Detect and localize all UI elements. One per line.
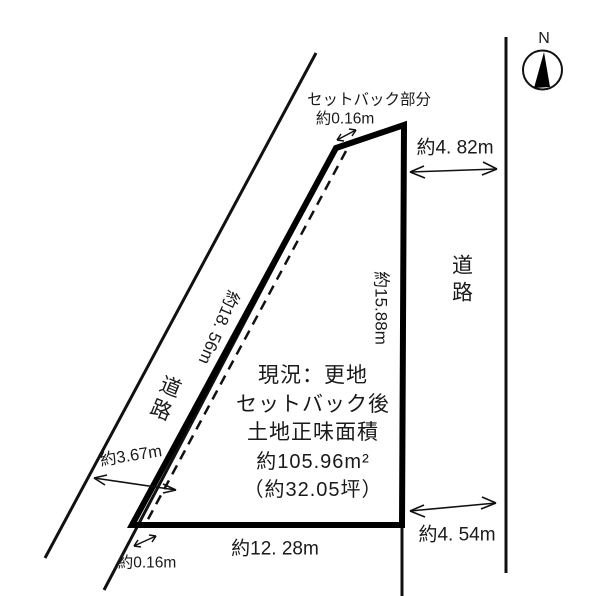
dimension-bottom-edge: 約12. 28m: [231, 540, 319, 561]
dimension-right-edge: 約15.88m: [371, 271, 390, 345]
setback-top-value: 約0.16m: [316, 110, 375, 127]
note-after-setback: セットバック後: [236, 391, 390, 420]
note-current-status: 現況：更地: [236, 362, 390, 391]
north-needle-icon: [534, 52, 550, 88]
setback-caption-label: セットバック部分: [307, 91, 431, 108]
dimension-arrow-top-right: [410, 162, 497, 178]
north-label: N: [538, 30, 550, 48]
dimension-arrow-bottom-right: [410, 497, 496, 517]
diagram-geometry: [0, 0, 600, 596]
dimension-top-right: 約4. 82m: [416, 139, 493, 160]
land-plot-diagram: N セットバック部分 約0.16m 約4. 82m 約18. 56m 道路 約1…: [0, 0, 600, 596]
compass-icon: [523, 51, 562, 90]
note-net-area-title: 土地正味面積: [236, 419, 390, 448]
setback-arrow-bottom: [134, 535, 156, 547]
note-area-tsubo: （約32.05坪）: [236, 476, 390, 505]
setback-bottom-value: 約0.16m: [118, 554, 177, 571]
dimension-bottom-right: 約4. 54m: [418, 526, 495, 547]
lot-summary-note: 現況：更地 セットバック後 土地正味面積 約105.96m² （約32.05坪）: [236, 362, 390, 505]
road-right-label: 道路: [449, 254, 472, 308]
note-area-sqm: 約105.96m²: [236, 448, 390, 477]
